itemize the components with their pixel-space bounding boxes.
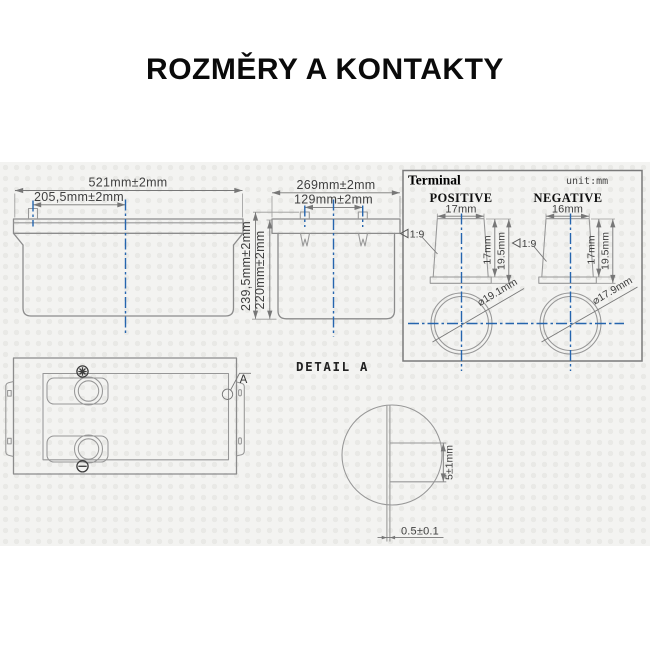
detail-a-marker-label: A — [240, 374, 248, 386]
side-view-total-height-dim-label: 239,5mm±2mm — [239, 221, 253, 311]
positive-post-base — [430, 277, 491, 283]
right-flange-slot-bottom — [239, 438, 242, 444]
detail-thickness-dim-label: 0.5±0.1 — [401, 526, 439, 538]
positive-total-height-label: 19.5mm — [496, 232, 508, 270]
front-view: 521mm±2mm 205,5mm±2mm — [14, 176, 244, 337]
positive-taper-height-label: 17mm — [482, 235, 494, 264]
top-view-left-flange — [6, 382, 14, 457]
terminal-panel-title: Terminal — [408, 173, 461, 188]
battery-dimension-drawing: 521mm±2mm 205,5mm±2mm 269mm±2mm 129mm±2m… — [0, 0, 650, 650]
left-flange-hole-bottom — [8, 438, 12, 444]
detail-wall-lines — [387, 405, 390, 541]
positive-post-taper — [433, 219, 488, 277]
detail-thickness-arrow-right — [390, 536, 395, 540]
top-view-inner-outline — [43, 374, 229, 460]
positive-terminal-drawing: POSITIVE 17mm 1:9 17mm 19.5mm ⌀19.1mm — [401, 191, 525, 371]
technical-drawing-page: ROZMĚRY A KONTAKTY 521mm±2mm 205,5mm±2mm — [0, 0, 650, 650]
side-view: 269mm±2mm 129mm±2mm 239,5mm±2mm 220mm±2m… — [239, 178, 400, 337]
negative-taper-icon — [513, 239, 521, 247]
detail-a-title: DETAIL A — [296, 359, 369, 374]
positive-taper-label: 1:9 — [410, 228, 425, 240]
side-view-body — [278, 233, 395, 318]
negative-total-height-label: 19.5mm — [600, 232, 612, 270]
negative-post-base — [539, 277, 597, 283]
detail-step-dim-label: 5±1mm — [444, 445, 456, 480]
negative-taper-height-label: 17mm — [586, 235, 598, 264]
side-view-container-height-dim-label: 220mm±2mm — [253, 230, 267, 309]
negative-taper-label: 1:9 — [522, 238, 537, 250]
positive-polarity-icon — [77, 366, 88, 377]
front-view-width-dim-label: 521mm±2mm — [88, 176, 167, 190]
front-view-body — [23, 245, 234, 316]
side-view-width-dim-label: 269mm±2mm — [296, 178, 375, 192]
top-view-right-flange — [237, 382, 245, 456]
negative-top-width-label: 16mm — [552, 204, 583, 216]
unit-label: unit:mm — [566, 176, 608, 187]
positive-taper-icon — [401, 229, 409, 237]
negative-terminal-drawing: NEGATIVE 16mm 1:9 17mm 19.5mm ⌀17.9mm — [513, 191, 638, 371]
left-flange-hole-top — [8, 391, 12, 397]
right-flange-slot-top — [239, 390, 242, 396]
negative-taper-leader — [534, 246, 547, 262]
detail-circle — [342, 405, 442, 505]
top-view: A — [6, 358, 251, 474]
negative-terminal-ring-inner — [78, 439, 98, 459]
positive-terminal-ring-inner — [78, 381, 98, 401]
negative-diameter-line — [542, 287, 638, 342]
detail-thickness-arrow-left — [382, 536, 387, 540]
front-view-offset-dim-label: 205,5mm±2mm — [34, 190, 124, 204]
detail-a-view: DETAIL A 5±1mm 0.5±0.1 — [296, 359, 456, 542]
front-view-lid — [14, 219, 244, 233]
detail-a-marker-circle — [222, 389, 232, 399]
side-view-lid — [272, 219, 400, 233]
terminal-panel: Terminal unit:mm POSITIVE 17mm 1:9 17mm … — [401, 171, 643, 372]
front-view-chamfers — [14, 233, 244, 245]
